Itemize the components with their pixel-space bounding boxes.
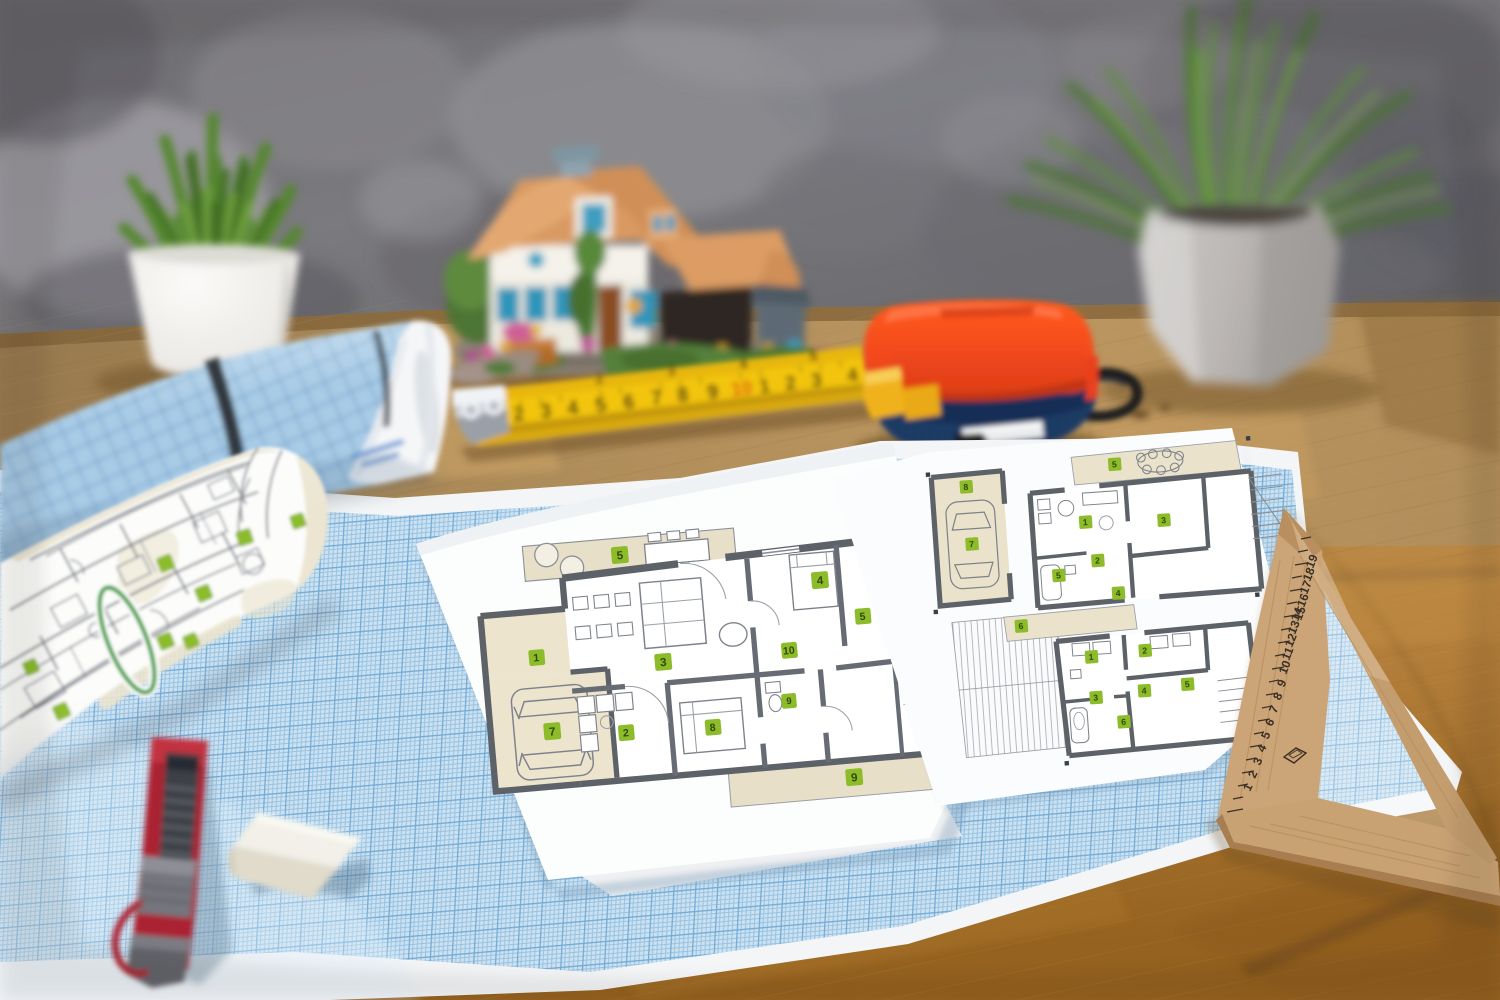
svg-text:2: 2	[1095, 555, 1101, 565]
svg-text:3: 3	[1093, 692, 1099, 702]
svg-text:4: 4	[1141, 686, 1147, 696]
svg-text:7: 7	[549, 725, 557, 739]
svg-text:10: 10	[730, 378, 753, 401]
svg-text:10: 10	[783, 645, 796, 658]
svg-text:4: 4	[1115, 588, 1121, 598]
svg-text:5: 5	[1184, 679, 1190, 689]
svg-text:2: 2	[1142, 645, 1148, 655]
svg-text:8: 8	[709, 722, 716, 734]
svg-text:9: 9	[786, 696, 792, 707]
svg-text:1: 1	[533, 652, 540, 664]
svg-text:5: 5	[1056, 570, 1062, 580]
svg-text:7: 7	[969, 539, 975, 549]
svg-text:6: 6	[1018, 621, 1024, 631]
svg-text:6: 6	[1121, 717, 1127, 727]
svg-text:8: 8	[963, 482, 969, 492]
svg-text:2: 2	[622, 727, 629, 739]
svg-text:1: 1	[1088, 652, 1094, 662]
svg-text:1: 1	[1082, 517, 1088, 527]
svg-text:3: 3	[1161, 515, 1167, 525]
svg-text:5: 5	[1112, 459, 1118, 469]
svg-text:5: 5	[859, 611, 866, 623]
